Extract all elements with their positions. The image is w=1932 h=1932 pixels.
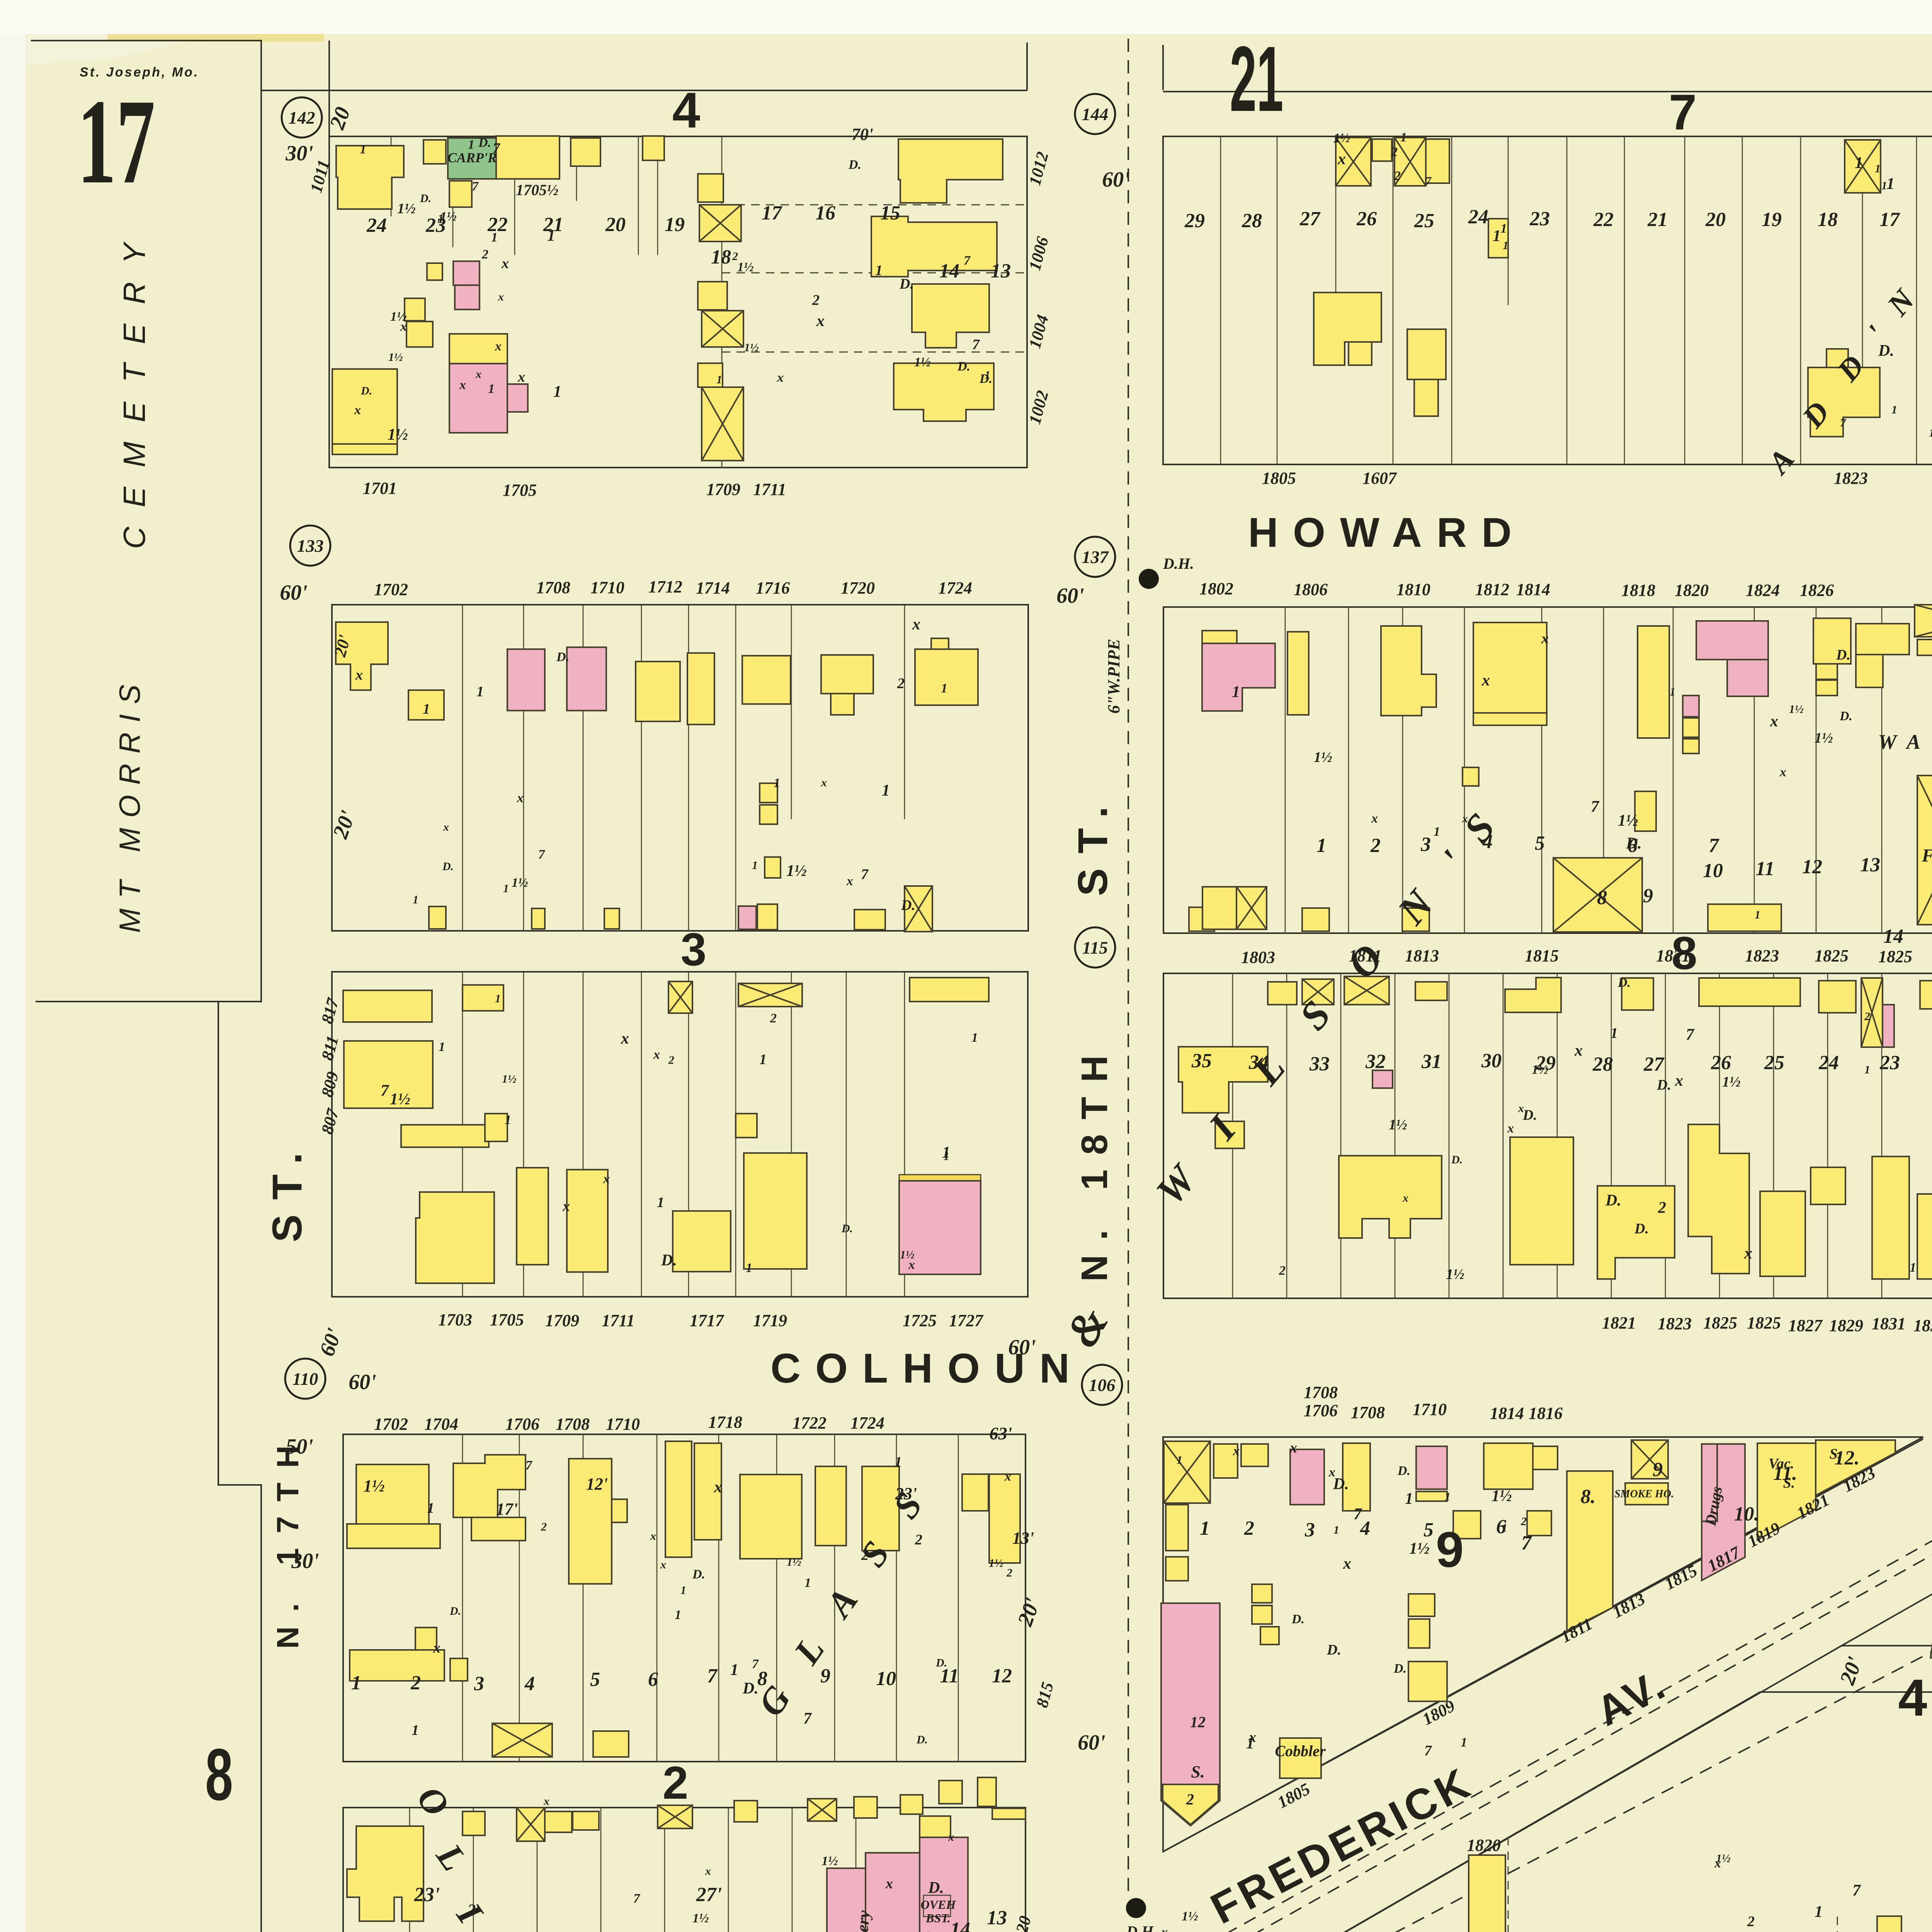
svg-text:x: x [1462,812,1468,825]
svg-text:1: 1 [553,383,561,401]
svg-text:1: 1 [1502,1522,1507,1534]
svg-text:x: x [498,291,504,303]
svg-text:1717: 1717 [690,1311,724,1330]
svg-text:17: 17 [1879,209,1900,231]
svg-text:D.: D. [1327,1642,1341,1658]
svg-text:3: 3 [1420,833,1431,855]
svg-text:9: 9 [1643,885,1653,907]
svg-text:1: 1 [491,230,498,245]
svg-text:22: 22 [1593,209,1614,231]
svg-text:1727: 1727 [949,1311,984,1330]
svg-text:24: 24 [1818,1052,1839,1074]
svg-text:1½: 1½ [786,862,807,880]
svg-text:1½: 1½ [1532,1063,1548,1077]
svg-text:1: 1 [505,1113,511,1127]
svg-text:D.: D. [1634,1221,1649,1237]
svg-text:10: 10 [1703,860,1723,882]
svg-text:4: 4 [1898,1668,1927,1727]
svg-text:1825: 1825 [1747,1313,1781,1332]
svg-text:1: 1 [1855,154,1863,172]
svg-text:2: 2 [467,1901,476,1919]
svg-text:2: 2 [1391,145,1398,159]
svg-text:1815: 1815 [1525,946,1559,965]
svg-text:50': 50' [286,1435,313,1459]
svg-text:COLHOUN: COLHOUN [770,1345,1084,1391]
svg-text:8: 8 [1597,887,1607,909]
svg-text:D.: D. [478,136,491,150]
svg-text:2: 2 [1747,1913,1755,1930]
svg-text:24: 24 [1468,206,1488,228]
svg-text:5: 5 [1423,1519,1434,1541]
svg-text:2: 2 [481,247,488,262]
svg-text:1½: 1½ [397,201,416,217]
svg-text:3: 3 [474,1673,484,1695]
svg-text:x: x [885,1876,893,1892]
svg-text:10: 10 [876,1668,896,1690]
svg-text:x: x [400,320,407,334]
svg-text:7: 7 [633,1891,641,1906]
svg-text:60': 60' [1008,1335,1036,1359]
svg-text:1: 1 [804,1576,811,1590]
svg-text:7: 7 [707,1665,718,1687]
svg-text:1708: 1708 [536,578,570,597]
svg-text:1: 1 [427,1500,434,1516]
svg-text:1709: 1709 [706,480,740,499]
svg-text:1: 1 [1864,1063,1870,1076]
svg-text:D.H.: D.H. [1163,555,1194,572]
svg-text:1: 1 [1815,1903,1823,1921]
svg-text:D.: D. [901,897,915,913]
svg-text:N. 18TH: N. 18TH [1074,1041,1115,1281]
svg-text:23': 23' [414,1884,440,1906]
svg-text:x: x [603,1172,610,1186]
svg-text:1821: 1821 [1602,1313,1636,1332]
svg-text:1: 1 [413,893,418,906]
svg-text:3: 3 [681,923,707,975]
svg-text:1½: 1½ [1716,1852,1731,1865]
svg-text:1: 1 [941,681,947,696]
svg-text:1: 1 [1910,1260,1916,1275]
svg-text:1: 1 [495,992,501,1005]
svg-text:x: x [1770,713,1778,730]
svg-text:OVEH: OVEH [921,1898,956,1912]
svg-text:MT MORRIS: MT MORRIS [114,675,146,933]
svg-text:20: 20 [1705,209,1726,231]
svg-text:12: 12 [1190,1713,1206,1731]
svg-text:144: 144 [1082,104,1109,124]
svg-text:34: 34 [1248,1051,1269,1073]
svg-text:1½: 1½ [1789,703,1804,716]
svg-text:1: 1 [746,1261,752,1275]
svg-text:17: 17 [762,202,782,224]
svg-text:ST.: ST. [264,1138,310,1242]
svg-text:1821: 1821 [1656,946,1690,965]
svg-text:x: x [1481,672,1490,689]
svg-text:1: 1 [680,1584,686,1597]
svg-text:1: 1 [1434,825,1440,839]
svg-text:1813: 1813 [1405,946,1439,965]
svg-text:1½: 1½ [1492,1487,1512,1505]
svg-text:2: 2 [668,1054,674,1066]
svg-text:1: 1 [1232,683,1240,701]
svg-text:x: x [1371,811,1378,826]
svg-text:1: 1 [1333,1524,1339,1536]
svg-text:1½: 1½ [502,1073,517,1085]
svg-text:2: 2 [410,1672,421,1694]
svg-text:1708: 1708 [1304,1383,1338,1402]
svg-text:1: 1 [759,1051,767,1068]
svg-text:1½: 1½ [692,1911,709,1925]
svg-text:x: x [1337,150,1346,168]
svg-text:1½: 1½ [1722,1074,1741,1090]
svg-text:1724: 1724 [850,1413,884,1432]
svg-text:8: 8 [205,1734,233,1816]
svg-text:26: 26 [1356,208,1377,230]
svg-text:D.: D. [361,384,372,397]
svg-text:1½: 1½ [388,351,403,364]
svg-text:CEMETERY: CEMETERY [117,224,151,549]
svg-text:6"W.PIPE: 6"W.PIPE [1104,639,1123,714]
svg-text:1: 1 [488,382,495,396]
svg-text:60': 60' [1102,168,1130,192]
svg-text:1½: 1½ [390,1090,410,1108]
svg-text:1701: 1701 [363,479,397,498]
svg-text:D.: D. [1656,1077,1671,1093]
svg-text:D.: D. [1626,835,1642,852]
svg-text:1½: 1½ [989,1557,1003,1570]
svg-text:1½: 1½ [787,1556,801,1568]
svg-text:D.H.: D.H. [1126,1923,1157,1932]
svg-text:1½: 1½ [364,1476,385,1495]
svg-text:60': 60' [280,581,308,605]
svg-text:1½: 1½ [914,355,931,369]
svg-text:1: 1 [360,142,366,156]
svg-text:9: 9 [820,1665,830,1687]
svg-text:2: 2 [770,1011,777,1026]
svg-text:1722: 1722 [793,1413,827,1432]
svg-text:1: 1 [774,776,780,790]
svg-text:x: x [714,1478,722,1496]
svg-text:1814: 1814 [1516,580,1550,599]
svg-text:1: 1 [503,882,509,895]
svg-text:14: 14 [1883,925,1903,947]
svg-text:1: 1 [476,684,484,700]
svg-text:4: 4 [1482,831,1493,853]
svg-text:25: 25 [1414,210,1434,232]
svg-text:x: x [1744,1245,1752,1262]
svg-text:7: 7 [803,1710,812,1728]
svg-text:7: 7 [538,847,546,862]
svg-text:2: 2 [1186,1791,1194,1808]
svg-text:13': 13' [1012,1529,1034,1548]
svg-text:2: 2 [1394,169,1401,183]
svg-text:8.: 8. [1581,1486,1596,1508]
svg-text:x: x [543,1795,549,1808]
svg-text:12: 12 [1802,856,1822,878]
svg-text:1702: 1702 [374,580,408,599]
svg-text:7: 7 [972,337,980,353]
svg-text:1: 1 [423,701,430,717]
svg-text:7: 7 [752,1657,759,1671]
svg-text:1: 1 [547,227,555,245]
svg-text:60': 60' [349,1370,376,1394]
svg-text:7: 7 [1424,1743,1432,1759]
svg-text:2: 2 [897,675,905,692]
svg-text:1: 1 [730,1661,738,1679]
svg-text:D.: D. [661,1252,677,1269]
svg-text:D.: D. [420,192,431,205]
svg-text:133: 133 [297,536,324,556]
svg-text:2: 2 [1006,1566,1012,1579]
svg-text:13: 13 [987,1907,1007,1929]
svg-text:1: 1 [1875,162,1881,175]
svg-text:D.: D. [979,372,992,386]
svg-text:1½: 1½ [1409,1540,1430,1558]
svg-text:1829: 1829 [1829,1316,1863,1335]
svg-text:S.: S. [1830,1446,1842,1462]
svg-text:D.: D. [449,1605,461,1617]
svg-text:27: 27 [1643,1053,1665,1075]
svg-text:x: x [1507,1121,1514,1136]
svg-text:12': 12' [586,1475,608,1493]
svg-text:9: 9 [1436,1521,1464,1578]
svg-text:1706: 1706 [505,1415,539,1434]
svg-text:1825: 1825 [1815,946,1849,965]
svg-text:7: 7 [1591,798,1600,816]
svg-text:S.: S. [1783,1475,1795,1491]
svg-text:x: x [650,1530,656,1543]
svg-text:x: x [501,255,509,272]
svg-text:1: 1 [439,1040,445,1054]
svg-text:1: 1 [1246,1735,1254,1752]
svg-text:1½: 1½ [388,426,408,444]
svg-text:30': 30' [285,141,313,165]
svg-text:2: 2 [861,1547,869,1563]
svg-text:1810: 1810 [1396,580,1430,599]
svg-text:x: x [355,667,363,683]
svg-text:Cobbler: Cobbler [1275,1742,1326,1760]
svg-text:7: 7 [1840,417,1846,429]
svg-text:1712: 1712 [648,577,682,596]
svg-text:27': 27' [696,1884,722,1906]
svg-text:14: 14 [939,260,959,282]
svg-text:9: 9 [1653,1459,1663,1481]
svg-text:x: x [1779,765,1786,779]
svg-text:D.: D. [899,276,914,292]
svg-text:SMOKE HO.: SMOKE HO. [1614,1488,1674,1500]
svg-text:2: 2 [1658,1199,1666,1217]
svg-text:3: 3 [1304,1519,1315,1541]
svg-text:63': 63' [990,1423,1012,1443]
svg-text:D.: D. [848,158,861,172]
svg-text:1: 1 [882,782,890,799]
svg-text:D.: D. [1393,1662,1406,1676]
svg-text:1: 1 [412,1722,419,1738]
svg-text:7: 7 [1425,175,1432,187]
svg-text:1714: 1714 [696,578,730,597]
svg-text:17': 17' [496,1500,518,1519]
svg-text:10.: 10. [1734,1503,1759,1525]
svg-text:D.: D. [1522,1107,1537,1123]
svg-text:21: 21 [1230,27,1284,131]
svg-text:1705: 1705 [503,481,537,500]
svg-text:x: x [495,339,502,354]
svg-text:1708: 1708 [556,1415,590,1434]
svg-text:D.: D. [1878,342,1894,360]
svg-text:D.: D. [1617,976,1631,990]
svg-text:1: 1 [895,1454,902,1470]
svg-text:x: x [443,821,449,833]
svg-text:x: x [1343,1555,1351,1573]
svg-text:4: 4 [524,1673,535,1695]
svg-text:D.: D. [442,860,454,873]
svg-text:1: 1 [1400,130,1407,145]
svg-text:1: 1 [1755,908,1760,921]
svg-text:BST.: BST. [925,1911,951,1925]
svg-text:21: 21 [1647,209,1668,231]
svg-text:D.: D. [1451,1153,1463,1166]
svg-text:29: 29 [1184,210,1205,232]
svg-text:x: x [433,1640,440,1656]
svg-text:x: x [517,369,525,385]
svg-text:1½: 1½ [744,341,759,354]
svg-text:ST.: ST. [1069,792,1116,896]
svg-text:60': 60' [1078,1731,1105,1755]
svg-text:1716: 1716 [756,578,790,597]
svg-text:1½: 1½ [1618,812,1638,830]
svg-text:x: x [621,1030,629,1048]
svg-text:S.: S. [1191,1762,1204,1781]
svg-text:D.: D. [1605,1192,1621,1209]
svg-text:1710: 1710 [606,1415,640,1434]
svg-text:4: 4 [672,82,700,138]
svg-text:1½: 1½ [1182,1909,1198,1923]
svg-text:23': 23' [895,1484,917,1503]
svg-text:1: 1 [1929,427,1932,439]
svg-text:1725: 1725 [903,1311,937,1330]
svg-text:1: 1 [944,1150,949,1163]
svg-text:110: 110 [293,1369,318,1389]
svg-text:x: x [846,874,853,888]
svg-text:FEED: FEED [1922,845,1932,866]
svg-text:1703: 1703 [438,1310,472,1329]
svg-text:137: 137 [1082,547,1109,567]
svg-text:1: 1 [875,262,883,279]
svg-text:x: x [354,403,361,417]
svg-text:7: 7 [1852,1882,1861,1900]
svg-text:1: 1 [1493,227,1501,245]
svg-text:x: x [1233,1444,1240,1458]
svg-text:31: 31 [1421,1051,1442,1073]
svg-text:1: 1 [1503,239,1509,252]
svg-text:x: x [1574,1042,1583,1060]
svg-text:24: 24 [366,214,387,236]
svg-text:2: 2 [915,1532,922,1548]
svg-text:2: 2 [541,1520,547,1533]
svg-text:32: 32 [1365,1051,1386,1073]
svg-text:1705½: 1705½ [516,181,558,199]
svg-text:D.: D. [1397,1464,1410,1478]
svg-text:x: x [705,1865,711,1878]
svg-text:30': 30' [291,1549,319,1573]
svg-text:1704: 1704 [424,1415,458,1434]
svg-text:1705: 1705 [490,1310,524,1329]
svg-text:1718: 1718 [708,1413,742,1432]
svg-text:x: x [777,371,784,385]
svg-text:1833: 1833 [1913,1316,1932,1335]
svg-text:2: 2 [1244,1517,1254,1539]
svg-text:2: 2 [663,1757,689,1809]
svg-text:2: 2 [1864,1010,1870,1023]
svg-text:33: 33 [1309,1053,1330,1075]
svg-text:13: 13 [1860,854,1880,876]
svg-text:1824: 1824 [1746,581,1780,600]
svg-text:23: 23 [1529,208,1550,230]
svg-text:5: 5 [590,1668,600,1690]
svg-text:1: 1 [752,859,758,872]
svg-text:35: 35 [1191,1050,1212,1072]
svg-text:D.: D. [1291,1612,1304,1626]
svg-text:13: 13 [991,260,1011,282]
svg-text:27: 27 [1299,208,1321,230]
svg-text:19: 19 [1762,209,1782,231]
svg-text:20: 20 [605,214,626,236]
svg-text:x: x [912,616,920,633]
svg-text:2: 2 [925,1929,931,1932]
svg-text:23: 23 [1879,1052,1900,1074]
svg-text:18: 18 [711,246,731,268]
svg-text:1: 1 [1405,1490,1413,1508]
svg-text:1: 1 [1461,1735,1467,1750]
svg-text:1831: 1831 [1872,1314,1906,1333]
svg-text:x: x [1402,1192,1408,1204]
svg-text:x: x [1675,1072,1683,1090]
svg-text:1820: 1820 [1467,1836,1501,1855]
svg-text:1: 1 [1177,1454,1182,1466]
svg-text:106: 106 [1089,1375,1116,1395]
svg-text:1½: 1½ [512,876,528,890]
svg-text:1823: 1823 [1834,469,1868,488]
svg-text:1: 1 [1316,835,1327,857]
svg-text:1: 1 [1670,685,1675,698]
svg-text:1818: 1818 [1621,581,1655,600]
svg-text:17: 17 [77,74,155,209]
svg-text:1702: 1702 [374,1415,408,1434]
svg-text:115: 115 [1082,938,1108,957]
svg-text:1: 1 [1200,1517,1210,1539]
svg-text:15: 15 [880,202,900,224]
svg-text:1½: 1½ [1389,1117,1407,1133]
svg-text:70': 70' [852,125,873,144]
svg-text:7: 7 [472,179,479,194]
svg-text:1½: 1½ [900,1248,915,1261]
svg-text:x: x [562,1198,570,1214]
svg-text:D.: D. [692,1567,705,1582]
svg-text:12: 12 [992,1665,1012,1687]
svg-text:1½: 1½ [1815,730,1833,746]
svg-text:x: x [948,1831,954,1844]
svg-text:1: 1 [1611,1025,1618,1041]
svg-text:28: 28 [1242,210,1262,232]
svg-text:7: 7 [1521,1532,1532,1554]
svg-text:5: 5 [1535,832,1545,854]
svg-text:1½: 1½ [440,209,457,224]
svg-text:1: 1 [1891,403,1897,416]
svg-text:1: 1 [675,1608,681,1622]
svg-text:1820: 1820 [1675,581,1709,600]
svg-text:1806: 1806 [1294,580,1328,599]
svg-text:7: 7 [526,1458,533,1473]
